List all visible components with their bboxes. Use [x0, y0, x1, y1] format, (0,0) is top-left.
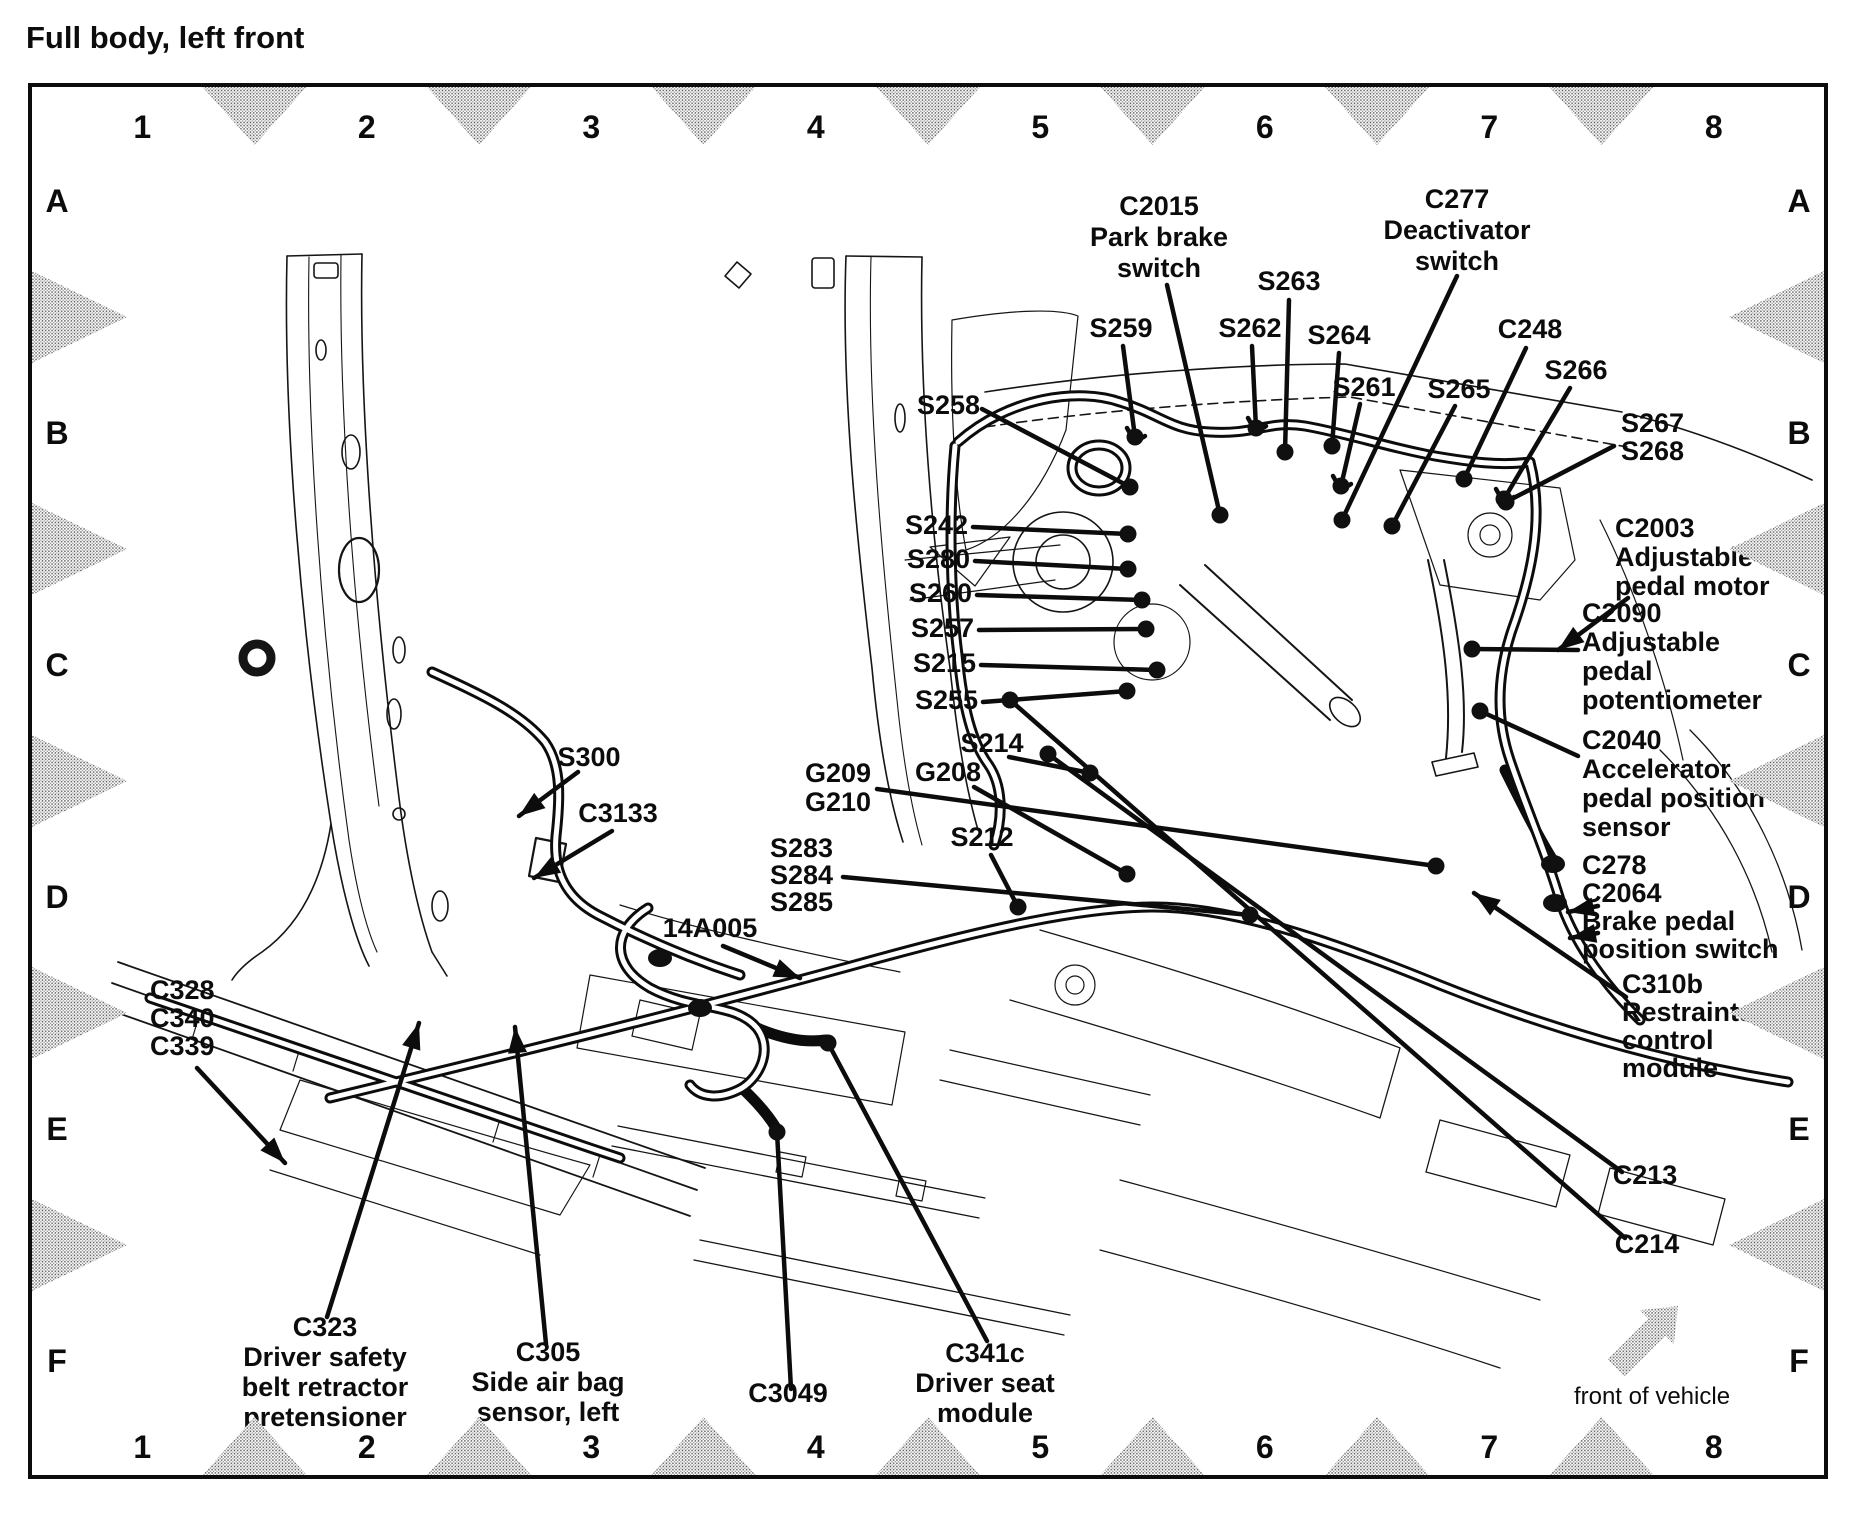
callout-line: module [937, 1398, 1033, 1428]
callout-line: G210 [805, 787, 871, 817]
leader-S212 [991, 855, 1018, 907]
leader-C2090 [1472, 649, 1578, 650]
callout-line: C2003 [1615, 513, 1695, 543]
callout-S267S268: S267S268 [1621, 408, 1684, 466]
leader-arrowhead-S300 [519, 793, 546, 816]
manual-page: Full body, left front [0, 0, 1860, 1520]
callout-line: Driver safety [243, 1342, 407, 1372]
grid-column-label-bottom-5: 5 [1031, 1429, 1049, 1465]
leader-S215 [981, 665, 1157, 670]
callout-line: C277 [1425, 184, 1490, 214]
callout-line: G208 [915, 757, 981, 787]
wiring-diagram-figure: Full body, left front [0, 0, 1860, 1520]
callout-C305: C305Side air bagsensor, left [471, 1337, 624, 1427]
grid-column-label-top-4: 4 [807, 109, 825, 145]
connector-node-S262 [1248, 420, 1265, 437]
connector-node-S265 [1384, 518, 1401, 535]
callout-line: S242 [905, 510, 968, 540]
grid-row-label-right-F: F [1789, 1343, 1809, 1379]
leader-S260 [977, 595, 1142, 600]
callout-C2090: C2090Adjustablepedalpotentiometer [1582, 598, 1763, 715]
connector-node-S260 [1134, 592, 1151, 609]
grid-column-label-top-2: 2 [358, 109, 376, 145]
grid-triangle-left [32, 967, 127, 1059]
callout-S215: S215 [913, 648, 976, 678]
callout-line: C305 [516, 1337, 581, 1367]
callout-line: C278 [1582, 850, 1647, 880]
callout-line: C2040 [1582, 725, 1662, 755]
callout-line: pedal position [1582, 783, 1765, 813]
callout-C341c: C341cDriver seatmodule [915, 1338, 1055, 1428]
callout-line: C340 [150, 1003, 215, 1033]
leader-S261 [1341, 404, 1360, 486]
callout-C310b: C310bRestraintscontrolmodule [1622, 969, 1754, 1083]
callout-S212: S212 [950, 822, 1013, 852]
leader-C341c [828, 1043, 987, 1341]
grid-row-label-right-E: E [1788, 1111, 1809, 1147]
callout-line: C2090 [1582, 598, 1662, 628]
callout-line: S260 [909, 578, 972, 608]
callout-line: Side air bag [471, 1367, 624, 1397]
grid-row-label-right-C: C [1787, 647, 1810, 683]
connector-node-extra-1 [1541, 855, 1565, 873]
grid-triangle-left [32, 1199, 127, 1291]
callout-G209G210: G209G210 [805, 758, 871, 817]
connector-node-S212 [1010, 899, 1027, 916]
callout-line: Park brake [1090, 222, 1228, 252]
connector-node-extra-3 [648, 949, 672, 967]
leader-C214 [1010, 700, 1625, 1238]
grid-triangle-top [876, 87, 980, 145]
grid-column-label-top-8: 8 [1705, 109, 1723, 145]
grid-row-label-left-C: C [45, 647, 68, 683]
grid-triangle-bottom [1550, 1417, 1654, 1475]
callout-line: S300 [557, 742, 620, 772]
callout-C3049: C3049 [748, 1378, 828, 1408]
leader-C2040 [1480, 711, 1578, 756]
grid-row-label-right-A: A [1787, 183, 1810, 219]
callout-line: S263 [1257, 266, 1320, 296]
callout-line: S215 [913, 648, 976, 678]
callout-line: C248 [1498, 314, 1563, 344]
callout-line: S212 [950, 822, 1013, 852]
leader-S267S268 [1506, 446, 1614, 502]
connector-node-C2015 [1212, 507, 1229, 524]
callout-S283S284S285: S283S284S285 [770, 833, 833, 917]
front-of-vehicle-label: front of vehicle [1574, 1383, 1730, 1410]
connector-node-S242 [1120, 526, 1137, 543]
callout-line: S264 [1307, 320, 1370, 350]
leader-C3049 [777, 1132, 791, 1389]
grid-row-label-left-D: D [45, 879, 68, 915]
callout-line: C2064 [1582, 878, 1662, 908]
callout-line: C328 [150, 975, 215, 1005]
callout-line: C341c [945, 1338, 1025, 1368]
callout-line: G209 [805, 758, 871, 788]
grid-triangle-left [32, 735, 127, 827]
grid-triangle-right [1729, 271, 1824, 363]
callout-line: S255 [915, 685, 978, 715]
grid-triangle-top [1550, 87, 1654, 145]
grid-column-label-bottom-4: 4 [807, 1429, 825, 1465]
callout-line: Deactivator [1383, 215, 1531, 245]
front-of-vehicle-arrow-icon [1608, 1306, 1679, 1377]
callout-C213: C213 [1613, 1160, 1678, 1190]
callout-line: S268 [1621, 436, 1684, 466]
leader-C305 [515, 1027, 546, 1344]
grid-column-label-top-7: 7 [1480, 109, 1498, 145]
connector-node-S261 [1333, 478, 1350, 495]
callout-S255: S255 [915, 685, 978, 715]
grid-column-label-bottom-2: 2 [358, 1429, 376, 1465]
callout-line: module [1622, 1053, 1718, 1083]
leader-C2015 [1167, 285, 1220, 515]
grid-triangle-top [427, 87, 531, 145]
callout-S265: S265 [1427, 374, 1490, 404]
grid-triangle-bottom [1325, 1417, 1429, 1475]
connector-node-G208 [1119, 866, 1136, 883]
callout-line: control [1622, 1025, 1714, 1055]
grid-reference-characters: 1122334455667788AABBCCDDEEFF [45, 109, 1810, 1465]
connector-node-G209G210 [1428, 858, 1445, 875]
leader-arrowhead-C323 [402, 1023, 420, 1051]
leader-arrowhead-C310b [1474, 893, 1501, 916]
callout-C3133: C3133 [578, 798, 658, 828]
connector-node-S280 [1120, 561, 1137, 578]
callout-G208: G208 [915, 757, 981, 787]
grid-triangle-left [32, 271, 127, 363]
callout-line: C2015 [1119, 191, 1199, 221]
grid-column-label-bottom-1: 1 [133, 1429, 151, 1465]
grid-column-label-bottom-6: 6 [1256, 1429, 1274, 1465]
callout-C278C2064: C278C2064Brake pedalposition switch [1582, 850, 1779, 964]
callout-line: S283 [770, 833, 833, 863]
connector-node-C214 [1002, 692, 1019, 709]
callout-line: S259 [1089, 313, 1152, 343]
grid-triangle-bottom [652, 1417, 756, 1475]
callout-line: C3133 [578, 798, 658, 828]
callout-line: belt retractor [242, 1372, 409, 1402]
grid-triangle-left [32, 503, 127, 595]
callout-C214: C214 [1615, 1229, 1680, 1259]
callout-line: S284 [770, 860, 833, 890]
callout-C277: C277Deactivatorswitch [1383, 184, 1531, 276]
callout-line: Adjustable [1582, 627, 1720, 657]
callout-line: pedal motor [1615, 571, 1770, 601]
grid-triangle-top [203, 87, 307, 145]
callout-line: position switch [1582, 934, 1779, 964]
grid-row-label-right-D: D [1787, 879, 1810, 915]
grid-column-label-top-3: 3 [582, 109, 600, 145]
leader-S259 [1123, 346, 1135, 437]
callout-line: pretensioner [243, 1402, 407, 1432]
grid-triangle-bottom [1101, 1417, 1205, 1475]
connector-node-extra-2 [688, 999, 712, 1017]
leader-S257 [979, 629, 1146, 630]
grid-triangle-top [1101, 87, 1205, 145]
grid-column-label-top-6: 6 [1256, 109, 1274, 145]
callout-line: potentiometer [1582, 685, 1763, 715]
leader-S280 [975, 561, 1128, 569]
callout-line: S280 [907, 544, 970, 574]
callout-line: C310b [1622, 969, 1703, 999]
grid-row-label-left-B: B [45, 415, 68, 451]
grid-column-label-bottom-7: 7 [1480, 1429, 1498, 1465]
leader-S283S284S285 [843, 877, 1250, 915]
grid-triangle-top [1325, 87, 1429, 145]
callout-line: sensor [1582, 812, 1671, 842]
connector-node-C213 [1040, 746, 1057, 763]
callout-S214: S214 [960, 728, 1023, 758]
connector-node-C2090 [1464, 641, 1481, 658]
leader-arrowhead-14A005 [772, 959, 800, 978]
leader-arrowhead-C2003 [1558, 627, 1585, 650]
callout-S259: S259 [1089, 313, 1152, 343]
callout-line: Driver seat [915, 1368, 1055, 1398]
grid-row-label-left-E: E [46, 1111, 67, 1147]
grid-row-label-left-F: F [47, 1343, 67, 1379]
callout-line: pedal [1582, 656, 1653, 686]
callout-S242: S242 [905, 510, 968, 540]
callout-labels: C2015Park brakeswitchC277Deactivatorswit… [150, 184, 1779, 1432]
callout-line: S257 [911, 613, 974, 643]
callout-S260: S260 [909, 578, 972, 608]
callout-line: C213 [1613, 1160, 1678, 1190]
callout-S263: S263 [1257, 266, 1320, 296]
connector-node-S259 [1127, 429, 1144, 446]
connector-node-C248 [1456, 471, 1473, 488]
connector-node-C3049 [769, 1124, 786, 1141]
front-of-vehicle: front of vehicle [1574, 1306, 1730, 1410]
connector-node-C341c [820, 1035, 837, 1052]
callout-C328C340C339: C328C340C339 [150, 975, 215, 1061]
connector-node-S214 [1082, 765, 1099, 782]
callout-line: sensor, left [477, 1397, 620, 1427]
connector-node-S258 [1122, 479, 1139, 496]
grid-column-label-bottom-8: 8 [1705, 1429, 1723, 1465]
grid-triangle-right [1729, 1199, 1824, 1291]
callout-S300: S300 [557, 742, 620, 772]
callout-14A005: 14A005 [663, 913, 758, 943]
callout-line: S261 [1332, 372, 1395, 402]
connector-node-C2040 [1472, 703, 1489, 720]
callout-line: C323 [293, 1312, 358, 1342]
callout-C2015: C2015Park brakeswitch [1090, 191, 1228, 283]
callout-line: C214 [1615, 1229, 1680, 1259]
connector-node-S215 [1149, 662, 1166, 679]
callout-line: switch [1117, 253, 1201, 283]
leader-S265 [1392, 406, 1455, 526]
grid-column-label-bottom-3: 3 [582, 1429, 600, 1465]
callout-line: S258 [917, 390, 980, 420]
connector-node-S257 [1138, 621, 1155, 638]
leader-lines [197, 276, 1628, 1389]
connector-node-S263 [1277, 444, 1294, 461]
page-title: Full body, left front [26, 20, 304, 55]
callout-S262: S262 [1218, 313, 1281, 343]
grid-triangle-top [652, 87, 756, 145]
grid-column-label-top-5: 5 [1031, 109, 1049, 145]
grid-triangle-right [1729, 735, 1824, 827]
callout-line: Brake pedal [1582, 906, 1735, 936]
callout-S257: S257 [911, 613, 974, 643]
connector-node-S267S268 [1498, 494, 1515, 511]
callout-C248: C248 [1498, 314, 1563, 344]
callout-line: S266 [1544, 355, 1607, 385]
callout-line: S214 [960, 728, 1023, 758]
callout-line: S267 [1621, 408, 1684, 438]
callout-line: S285 [770, 887, 833, 917]
callout-line: switch [1415, 246, 1499, 276]
callout-S264: S264 [1307, 320, 1370, 350]
vehicle-line-art [104, 254, 1812, 1368]
leader-S262 [1252, 346, 1256, 428]
callout-line: 14A005 [663, 913, 758, 943]
connector-node-S264 [1324, 438, 1341, 455]
callout-line: C3049 [748, 1378, 828, 1408]
grid-row-label-right-B: B [1787, 415, 1810, 451]
callout-S266: S266 [1544, 355, 1607, 385]
callout-line: S262 [1218, 313, 1281, 343]
callout-S280: S280 [907, 544, 970, 574]
callout-line: S265 [1427, 374, 1490, 404]
callout-line: C339 [150, 1031, 215, 1061]
connector-node-C277 [1334, 512, 1351, 529]
callout-C323: C323Driver safetybelt retractorpretensio… [242, 1312, 409, 1432]
callout-line: Accelerator [1582, 754, 1731, 784]
connector-node-extra-0 [1543, 894, 1567, 912]
callout-S261: S261 [1332, 372, 1395, 402]
connector-node-S283S284S285 [1242, 907, 1259, 924]
grid-triangle-right [1729, 967, 1824, 1059]
grid-column-label-top-1: 1 [133, 109, 151, 145]
connector-node-S255 [1119, 683, 1136, 700]
grid-row-label-left-A: A [45, 183, 68, 219]
callout-S258: S258 [917, 390, 980, 420]
callout-line: Adjustable [1615, 542, 1753, 572]
